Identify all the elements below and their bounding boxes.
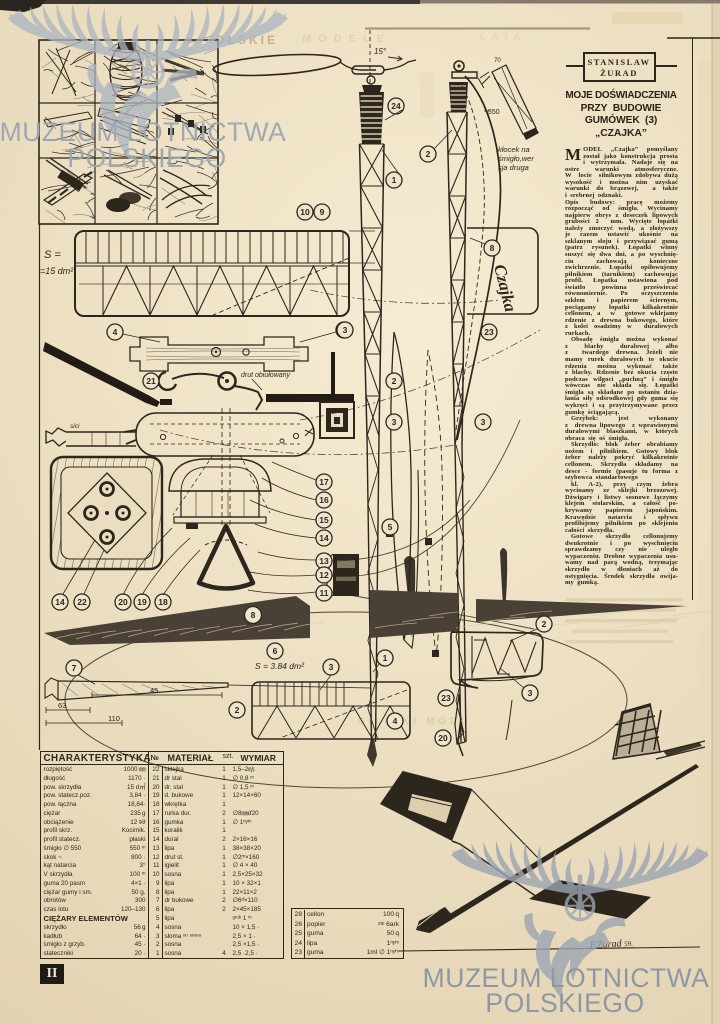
svg-text:23: 23 [441, 693, 451, 703]
svg-text:2: 2 [392, 376, 397, 386]
svg-text:5: 5 [388, 522, 393, 532]
svg-text:20: 20 [438, 733, 448, 743]
svg-text:14: 14 [55, 597, 65, 607]
svg-text:8: 8 [490, 243, 495, 253]
svg-text:4: 4 [393, 716, 398, 726]
svg-text:7: 7 [72, 663, 77, 673]
svg-text:LATA: LATA [480, 32, 525, 43]
svg-text:kłocek na: kłocek na [498, 145, 530, 154]
svg-text:22: 22 [77, 597, 87, 607]
svg-text:12: 12 [319, 570, 329, 580]
svg-text:4: 4 [113, 327, 118, 337]
svg-text:110: 110 [108, 714, 120, 723]
svg-text:3: 3 [392, 417, 397, 427]
svg-text:550: 550 [488, 109, 500, 116]
svg-text:MODELE: MODELE [302, 33, 391, 45]
svg-text:sici: sici [70, 423, 80, 430]
svg-text:3: 3 [343, 325, 348, 335]
svg-text:POLSKIEGO: POLSKIEGO [485, 988, 644, 1018]
svg-text:2: 2 [426, 149, 431, 159]
svg-text:2: 2 [542, 619, 547, 629]
svg-text:15: 15 [319, 515, 329, 525]
svg-text:3: 3 [329, 662, 334, 672]
svg-text:8: 8 [251, 610, 256, 620]
svg-text:21: 21 [146, 376, 156, 386]
svg-text:ŻURAD: ŻURAD [600, 68, 638, 78]
svg-text:11: 11 [320, 588, 329, 598]
svg-text:18: 18 [158, 597, 168, 607]
svg-text:S =: S = [44, 249, 61, 261]
svg-text:17: 17 [319, 477, 329, 487]
svg-text:20: 20 [118, 597, 128, 607]
svg-text:drut obiułowany: drut obiułowany [241, 372, 291, 379]
svg-text:70: 70 [494, 58, 501, 64]
svg-text:=15 dm²: =15 dm² [40, 266, 74, 276]
svg-text:63: 63 [58, 701, 66, 710]
svg-text:Czajka: Czajka [490, 262, 520, 314]
svg-text:śmigło,wer: śmigło,wer [498, 154, 534, 163]
svg-text:3: 3 [528, 688, 533, 698]
svg-text:STANISLAW: STANISLAW [588, 57, 651, 67]
svg-text:S = 3.84 dm²: S = 3.84 dm² [255, 661, 305, 671]
svg-text:14: 14 [319, 533, 329, 543]
svg-text:45: 45 [150, 686, 158, 695]
svg-text:23: 23 [484, 327, 494, 337]
svg-text:24: 24 [391, 101, 401, 111]
svg-text:1: 1 [392, 175, 397, 185]
svg-text:16: 16 [319, 495, 329, 505]
svg-text:19: 19 [137, 597, 147, 607]
svg-text:3: 3 [481, 417, 486, 427]
svg-text:10: 10 [300, 207, 310, 217]
svg-text:9: 9 [320, 207, 325, 217]
svg-text:15°: 15° [374, 47, 387, 56]
svg-text:2: 2 [235, 705, 240, 715]
svg-text:13: 13 [319, 556, 329, 566]
svg-text:POLSKIEGO: POLSKIEGO [67, 143, 226, 173]
svg-text:sja druga: sja druga [498, 163, 529, 172]
svg-text:6: 6 [273, 646, 278, 656]
svg-text:1: 1 [383, 653, 388, 663]
